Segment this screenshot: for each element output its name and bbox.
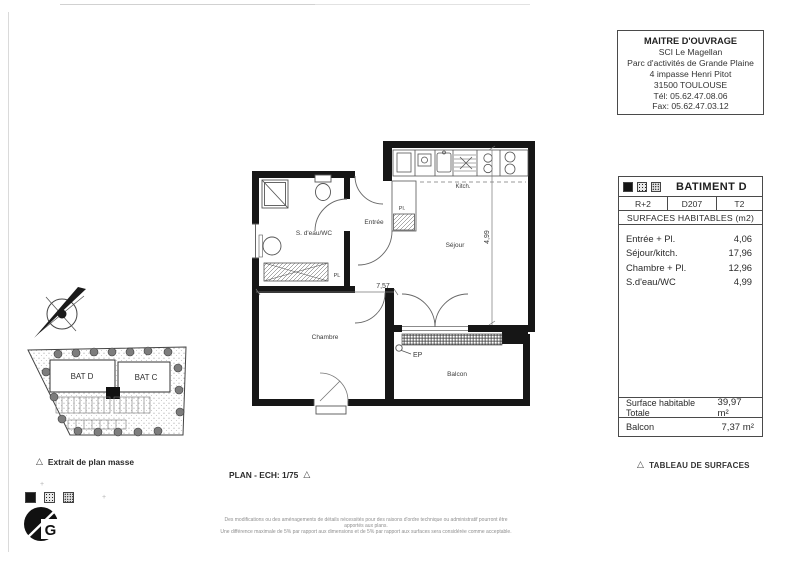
- triangle-icon: △: [637, 461, 644, 470]
- site-plan-caption-text: Extrait de plan masse: [48, 457, 134, 467]
- building-d-label: BAT D: [71, 372, 94, 381]
- legend-swatch-icon: [44, 492, 55, 503]
- toilet-icon: [315, 175, 331, 201]
- room-area: 17,96: [729, 246, 752, 260]
- balcony-threshold: [402, 334, 502, 345]
- triangle-icon: △: [303, 471, 310, 480]
- drain-label: EP: [413, 352, 423, 359]
- surfaces-table: BATIMENT D R+2 D207 T2 SURFACES HABITABL…: [618, 176, 763, 437]
- owner-title-block: MAITRE D'OUVRAGE SCI Le Magellan Parc d'…: [617, 30, 764, 115]
- closet-large-label: PL: [334, 273, 341, 279]
- balcony-value: 7,37 m²: [721, 422, 754, 433]
- legend-swatch-icon: [25, 492, 36, 503]
- room-label: Chambre + Pl.: [626, 261, 686, 275]
- owner-address-1: Parc d'activités de Grande Plaine: [618, 58, 763, 69]
- bathroom-closet: [264, 263, 328, 281]
- dimension-width-label: 7,57: [376, 283, 390, 290]
- building-label: BATIMENT D: [665, 181, 758, 193]
- shower-icon: [262, 180, 288, 208]
- balcony-label: Balcon: [447, 371, 467, 378]
- bathroom-window: [252, 224, 259, 258]
- legend-swatch-icon: [651, 182, 661, 192]
- company-logo: G: [22, 505, 64, 545]
- floor-plan: EP 4,99 7,57 S. d'eau/WC Entrée Kitch. S…: [250, 136, 538, 432]
- surfaces-table-caption-text: TABLEAU DE SURFACES: [649, 461, 750, 470]
- legend-swatch-icon: [63, 492, 74, 503]
- owner-heading: MAITRE D'OUVRAGE: [618, 36, 763, 47]
- owner-address-2: 4 impasse Henri Pitot: [618, 69, 763, 80]
- total-row: Surface habitable Totale 39,97 m²: [619, 397, 762, 418]
- disclaimer-text: Des modifications ou des aménagements de…: [216, 517, 516, 535]
- unit-info-row: R+2 D207 T2: [619, 197, 762, 211]
- bathroom-label: S. d'eau/WC: [296, 230, 333, 237]
- surfaces-table-header: BATIMENT D: [619, 177, 762, 197]
- scanned-plan-sheet: { "title_block": { "lines": [ "MAITRE D'…: [0, 0, 799, 565]
- drain-ep: EP: [396, 345, 423, 359]
- unit-number: D207: [668, 197, 717, 210]
- surfaces-section-title: SURFACES HABITABLES (m2): [619, 211, 762, 225]
- closet-small-label: Pl.: [399, 206, 406, 212]
- triangle-icon: △: [36, 458, 43, 467]
- kitchen-label: Kitch.: [455, 184, 470, 190]
- room-area: 4,06: [734, 232, 752, 246]
- dimension-height-label: 4,99: [484, 230, 491, 244]
- legend-swatch-icon: [623, 182, 633, 192]
- kitchen-counter: [393, 150, 528, 182]
- site-plan-caption: △ Extrait de plan masse: [36, 457, 134, 467]
- floor-level: R+2: [619, 197, 668, 210]
- table-row: Séjour/kitch. 17,96: [619, 246, 762, 260]
- bedroom-window: [314, 373, 348, 414]
- balcony-french-doors: [402, 294, 468, 331]
- table-spacer: [619, 290, 762, 397]
- legend-swatch-icon: [637, 182, 647, 192]
- room-label: Séjour/kitch.: [626, 246, 678, 260]
- scan-artifact-line: [60, 4, 315, 5]
- building-c-label: BAT C: [135, 373, 158, 382]
- surfaces-list: Entrée + Pl. 4,06 Séjour/kitch. 17,96 Ch…: [619, 232, 762, 290]
- balcony-label: Balcon: [626, 422, 654, 432]
- scan-artifact-line: [8, 12, 9, 552]
- north-arrow-icon: [34, 287, 86, 338]
- print-calibration-swatches: [25, 492, 74, 503]
- svg-text:G: G: [45, 522, 57, 539]
- room-label: Entrée + Pl.: [626, 232, 675, 246]
- table-row: S.d'eau/WC 4,99: [619, 275, 762, 289]
- unit-type: T2: [717, 197, 762, 210]
- room-label: S.d'eau/WC: [626, 275, 676, 289]
- table-row: Entrée + Pl. 4,06: [619, 232, 762, 246]
- registration-mark: +: [102, 494, 106, 501]
- site-plan: BAT D BAT C: [18, 282, 188, 462]
- plan-scale-caption: PLAN - ECH: 1/75 △: [229, 470, 310, 480]
- balcony-row: Balcon 7,37 m²: [619, 418, 762, 436]
- surfaces-table-caption: △ TABLEAU DE SURFACES: [637, 461, 750, 470]
- bedroom-label: Chambre: [312, 334, 339, 341]
- owner-fax: Fax: 05.62.47.03.12: [618, 101, 763, 112]
- disclaimer-line-2: Une différence maximale de 5% par rappor…: [216, 529, 516, 535]
- total-label: Surface habitable Totale: [626, 398, 718, 418]
- dimension-vertical: 4,99: [484, 146, 495, 325]
- plan-scale-text: PLAN - ECH: 1/75: [229, 470, 298, 480]
- owner-company: SCI Le Magellan: [618, 47, 763, 58]
- total-value: 39,97 m²: [718, 397, 754, 419]
- owner-phone: Tél: 05.62.47.08.06: [618, 91, 763, 102]
- table-row: Chambre + Pl. 12,96: [619, 261, 762, 275]
- living-label: Séjour: [446, 242, 466, 249]
- room-area: 4,99: [734, 275, 752, 289]
- room-area: 12,96: [729, 261, 752, 275]
- owner-city: 31500 TOULOUSE: [618, 80, 763, 91]
- entrance-label: Entrée: [364, 219, 384, 226]
- registration-mark: +: [40, 481, 44, 488]
- washbasin-icon: [259, 235, 281, 257]
- disclaimer-line-1: Des modifications ou des aménagements de…: [216, 517, 516, 529]
- scan-artifact-line: [315, 4, 530, 5]
